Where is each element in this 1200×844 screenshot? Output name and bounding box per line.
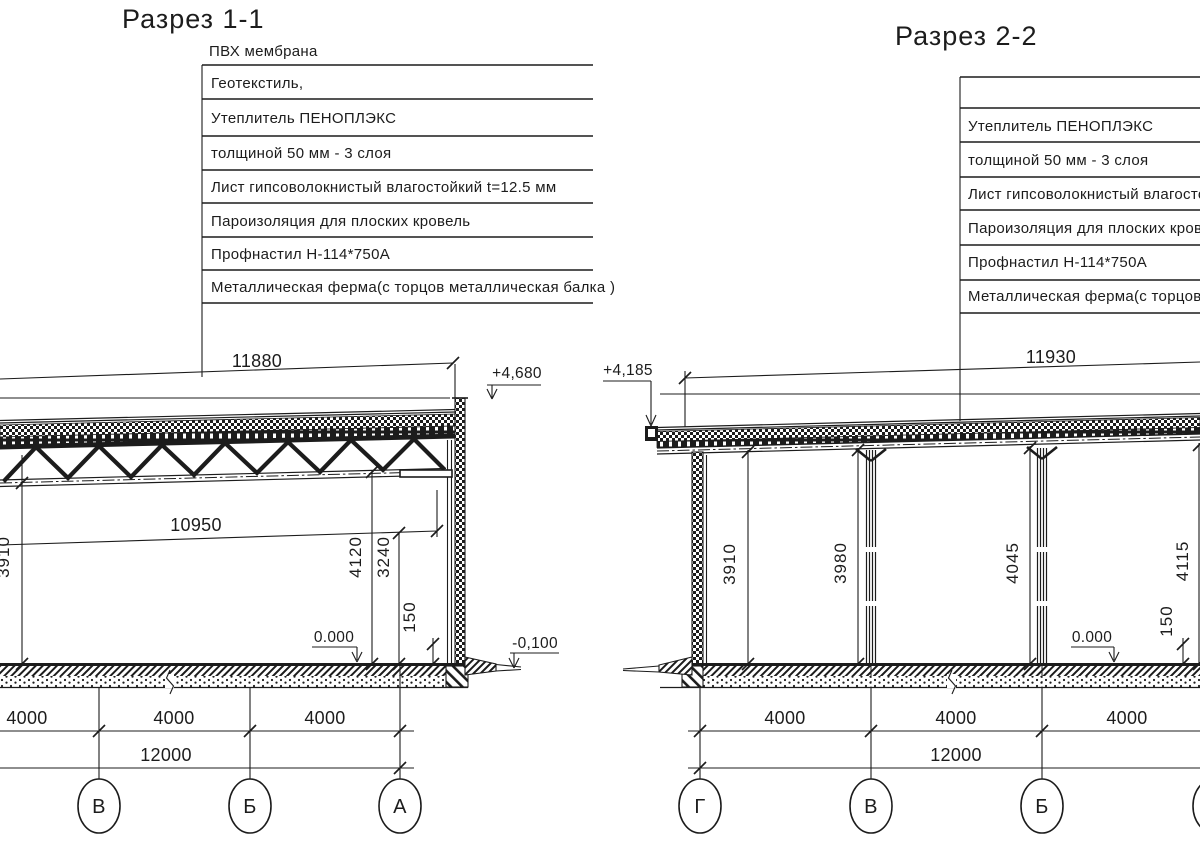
section-1-title: Разрез 1-1 — [122, 4, 265, 34]
dim-clear-span: 10950 — [170, 515, 222, 535]
axis-label: Б — [1035, 796, 1048, 818]
callout-row: Лист гипсоволокнистый влагостойкий — [968, 186, 1200, 203]
section-2-title: Разрез 2-2 — [895, 21, 1038, 51]
callout-row: Профнастил Н-114*750А — [211, 246, 390, 263]
floor-screed-band — [0, 666, 455, 676]
floor-screed-band — [692, 666, 1200, 676]
dim-total: 12000 — [930, 745, 982, 765]
wall-sandwich-panel — [692, 452, 703, 665]
dim-height-left: 3910 — [0, 536, 13, 578]
truss-bearing-plate — [400, 470, 452, 477]
dim-bay: 4000 — [1106, 708, 1147, 728]
callout-row: Утеплитель ПЕНОПЛЭКС — [968, 118, 1153, 135]
callout-row: Профнастил Н-114*750А — [968, 254, 1147, 271]
callout-row: Пароизоляция для плоских кровель — [211, 213, 470, 230]
callout-row: толщиной 50 мм - 3 слоя — [211, 145, 391, 162]
axis-label: Б — [243, 796, 256, 818]
dim-bay: 4000 — [153, 708, 194, 728]
dim-roof-span: 11880 — [232, 351, 282, 371]
level-ground: -0,100 — [512, 635, 558, 652]
level-roof-top: +4,185 — [603, 362, 653, 379]
sections-drawing: Разрез 1-1 ПВХ мембрана Геотекстиль, Уте… — [0, 0, 1200, 844]
dim-height-axis-a: 4115 — [1173, 541, 1192, 582]
callout-row: Металлическая ферма(с торцов м — [968, 288, 1200, 305]
callout-row: Металлическая ферма(с торцов металлическ… — [211, 279, 615, 296]
dim-height-axis-g: 3910 — [720, 543, 739, 585]
dim-bay: 4000 — [6, 708, 47, 728]
floor-base-band — [692, 676, 1200, 687]
dim-height-axis-b: 4045 — [1003, 542, 1022, 584]
callout-row: Геотекстиль, — [211, 75, 303, 92]
callout-row: Лист гипсоволокнистый влагостойкий t=12.… — [211, 179, 556, 196]
axis-label: Г — [694, 796, 705, 818]
callout-pvc-membrane-label: ПВХ мембрана — [209, 43, 318, 60]
dim-height-right-inner: 3240 — [374, 536, 393, 578]
callout-row: толщиной 50 мм - 3 слоя — [968, 152, 1148, 169]
wall-sandwich-panel — [455, 398, 465, 676]
dim-bay: 4000 — [764, 708, 805, 728]
dim-plinth: 150 — [400, 601, 419, 632]
level-floor: 0.000 — [1072, 629, 1112, 646]
dim-bay: 4000 — [304, 708, 345, 728]
axis-label: А — [393, 796, 407, 818]
floor-base-band — [0, 676, 447, 687]
callout-row: Утеплитель ПЕНОПЛЭКС — [211, 110, 396, 127]
level-floor: 0.000 — [314, 629, 354, 646]
axis-label: В — [92, 796, 106, 818]
dim-height-axis-v: 3980 — [831, 542, 850, 584]
callout-row: Пароизоляция для плоских кровель — [968, 220, 1200, 237]
dim-total: 12000 — [140, 745, 192, 765]
dim-roof-span: 11930 — [1026, 347, 1076, 367]
level-roof-top: +4,680 — [492, 365, 542, 382]
dim-height-right-outer: 4120 — [346, 536, 365, 578]
dim-plinth: 150 — [1157, 605, 1176, 636]
axis-label: В — [864, 796, 878, 818]
dim-bay: 4000 — [935, 708, 976, 728]
drawing-sheet: Разрез 1-1 ПВХ мембрана Геотекстиль, Уте… — [0, 0, 1200, 844]
